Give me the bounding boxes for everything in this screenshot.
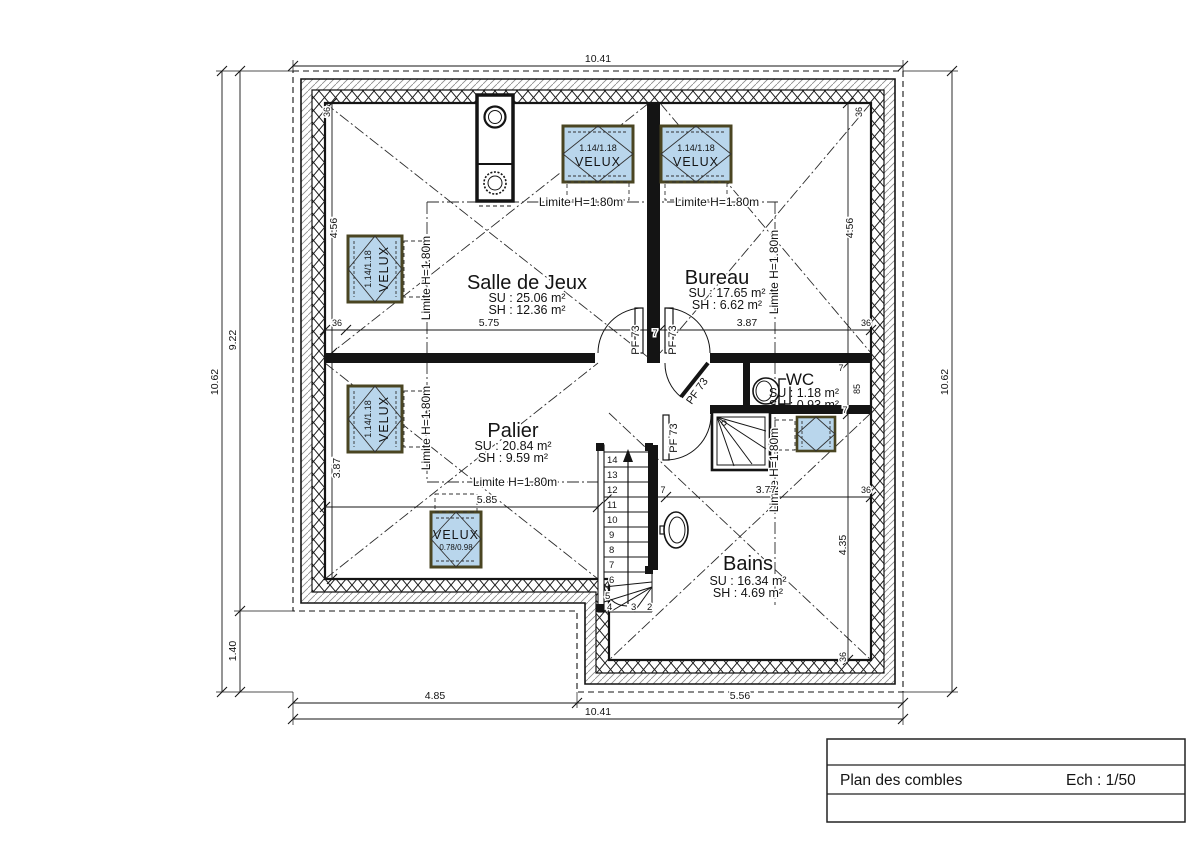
title-block-title: Plan des combles bbox=[840, 772, 963, 789]
velux-window-left-lower bbox=[348, 386, 402, 452]
stair-step-2: 2 bbox=[647, 602, 652, 613]
dim-left-lower: 1.40 bbox=[227, 641, 239, 662]
dim-int-vl-36: 36 bbox=[322, 107, 332, 117]
dim-int-vl-387: 3.87 bbox=[331, 458, 343, 479]
dim-bottom-total: 10.41 bbox=[585, 706, 611, 718]
velux-size-left-lower: 1.14/1.18 bbox=[363, 400, 373, 438]
title-block-scale: Ech : 1/50 bbox=[1066, 772, 1136, 789]
dim-int-vr-7a: 7 bbox=[838, 363, 843, 373]
stair-step-6: 6 bbox=[609, 575, 614, 586]
door-label-right: PF 73 bbox=[667, 325, 679, 354]
velux-name-left-lower: VELUX bbox=[377, 396, 391, 442]
dim-int-vr-456: 4.56 bbox=[844, 218, 856, 239]
wall-wc-west bbox=[743, 363, 750, 413]
dim-int-h2-377: 3.77 bbox=[756, 484, 777, 496]
limit-label-left-lower: Limite H=1.80m bbox=[419, 386, 433, 470]
chimney bbox=[477, 95, 513, 206]
dim-left-total: 10.62 bbox=[209, 369, 221, 395]
door-label-left: PF 73 bbox=[630, 325, 642, 354]
stair-step-8: 8 bbox=[609, 545, 614, 556]
limit-label-bains: Limite H=1.80m bbox=[767, 428, 781, 512]
velux-name-top-right: VELUX bbox=[673, 155, 719, 169]
title-block: Plan des combles Ech : 1/50 bbox=[827, 739, 1185, 822]
dim-int-vr-36a: 36 bbox=[854, 107, 864, 117]
floor-plan-sheet: Salle de Jeux SU : 25.06 m² SH : 12.36 m… bbox=[0, 0, 1200, 849]
dim-int-vr-36b: 36 bbox=[838, 652, 848, 662]
dim-int-h1-36a: 36 bbox=[332, 318, 342, 328]
dim-int-vr-85: 85 bbox=[852, 384, 862, 394]
dim-int-h2-36: 36 bbox=[861, 485, 871, 495]
sink-icon bbox=[660, 512, 688, 548]
dim-int-h1-36b: 36 bbox=[861, 318, 871, 328]
room-sh-bureau: SH : 6.62 m² bbox=[692, 298, 762, 312]
velux-name-top-left: VELUX bbox=[575, 155, 621, 169]
dim-top-total: 10.41 bbox=[585, 53, 611, 65]
velux-size-top-right: 1.14/1.18 bbox=[677, 143, 715, 153]
door-label-bains: PF 73 bbox=[668, 423, 680, 452]
door-swing-corridor bbox=[665, 363, 681, 397]
wall-palier-north-right bbox=[710, 353, 871, 363]
stair-step-5: 5 bbox=[605, 591, 610, 602]
wall-palier-north-left bbox=[325, 353, 595, 363]
wall-stair-east bbox=[648, 445, 658, 570]
dim-left-upper: 9.22 bbox=[227, 330, 239, 351]
limit-label-top-left: Limite H=1.80m bbox=[539, 195, 623, 209]
stair-step-11: 11 bbox=[607, 500, 617, 511]
dim-int-vr-435: 4.35 bbox=[837, 535, 849, 556]
stair-step-3: 3 bbox=[631, 602, 636, 613]
velux-size-left-upper: 1.14/1.18 bbox=[363, 250, 373, 288]
velux-windows bbox=[348, 126, 835, 567]
stair-step-10: 10 bbox=[607, 515, 618, 526]
stair-step-9: 9 bbox=[609, 530, 614, 541]
dim-right-total: 10.62 bbox=[939, 369, 951, 395]
wall-salle-bureau bbox=[647, 103, 660, 363]
dim-int-h1-7: 7 bbox=[652, 328, 657, 338]
velux-window-left-upper bbox=[348, 236, 402, 302]
limit-label-top-right: Limite H=1.80m bbox=[675, 195, 759, 209]
velux-size-bottom: 0.78/0.98 bbox=[439, 543, 473, 552]
floor-plan-drawing: Salle de Jeux SU : 25.06 m² SH : 12.36 m… bbox=[0, 0, 1200, 849]
dim-int-vr-7b: 7 bbox=[842, 405, 847, 415]
stair-step-14: 14 bbox=[607, 455, 618, 466]
stair-step-7: 7 bbox=[609, 560, 614, 571]
dim-int-h2-7: 7 bbox=[660, 485, 665, 495]
room-sh-wc: SH : 0.93 m² bbox=[769, 398, 839, 412]
limit-label-palier: Limite H=1.80m bbox=[473, 475, 557, 489]
velux-window-top-right bbox=[661, 126, 731, 182]
dim-bottom-left: 4.85 bbox=[425, 690, 446, 702]
stair-step-4: 4 bbox=[607, 602, 612, 613]
stair-stringer-left bbox=[598, 445, 604, 612]
dim-int-h1-575: 5.75 bbox=[479, 317, 500, 329]
stair-up-arrow-icon bbox=[623, 449, 633, 462]
room-sh-palier: SH : 9.59 m² bbox=[478, 451, 548, 465]
room-sh-bains: SH : 4.69 m² bbox=[713, 586, 783, 600]
door-label-corridor: PF 73 bbox=[684, 376, 711, 407]
dim-int-h2-585: 5.85 bbox=[477, 494, 498, 506]
room-name-bains: Bains bbox=[723, 553, 773, 575]
velux-window-top-left bbox=[563, 126, 633, 182]
dim-bottom-right: 5.56 bbox=[730, 690, 751, 702]
velux-window-right-small bbox=[797, 417, 835, 451]
stair-step-12: 12 bbox=[607, 485, 618, 496]
limit-label-left-upper: Limite H=1.80m bbox=[419, 236, 433, 320]
stair-step-13: 13 bbox=[607, 470, 618, 481]
dim-int-h1-387: 3.87 bbox=[737, 317, 758, 329]
dim-int-vl-456: 4.56 bbox=[328, 218, 340, 239]
room-sh-salle-de-jeux: SH : 12.36 m² bbox=[488, 303, 565, 317]
shower-icon bbox=[712, 412, 770, 470]
velux-size-top-left: 1.14/1.18 bbox=[579, 143, 617, 153]
staircase bbox=[596, 443, 653, 612]
velux-name-bottom: VELUX bbox=[433, 528, 479, 542]
velux-name-left-upper: VELUX bbox=[377, 246, 391, 292]
limit-label-bureau: Limite H=1.80m bbox=[767, 230, 781, 314]
